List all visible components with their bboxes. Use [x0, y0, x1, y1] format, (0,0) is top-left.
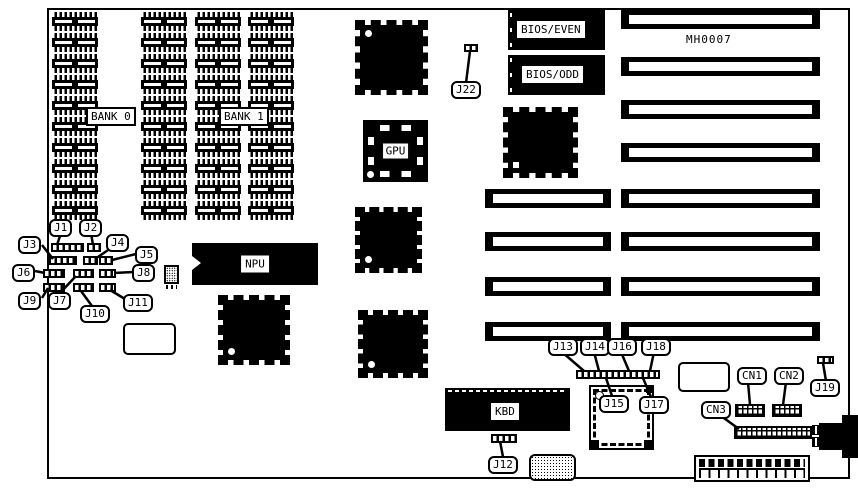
jumper-label-j17: J17	[639, 396, 669, 414]
resonator-small-legs	[166, 285, 177, 289]
qfp-chip-right	[503, 107, 578, 178]
expansion-slot-short-1	[485, 189, 611, 208]
jumper-block-j1	[51, 243, 84, 252]
jumper-label-j8: J8	[132, 264, 155, 282]
board-model-text: MH0007	[686, 33, 732, 46]
expansion-slot-short-3	[485, 277, 611, 296]
expansion-slot-1	[621, 10, 820, 29]
expansion-slot-5	[621, 189, 820, 208]
expansion-slot-6	[621, 232, 820, 251]
gpu-label: GPU	[382, 143, 410, 160]
npu-notch	[192, 256, 201, 270]
din-keyboard-connector	[842, 415, 858, 458]
qfp-chip-top	[355, 20, 428, 95]
jumper-label-j1: J1	[49, 219, 72, 237]
qfp-chip-mid2	[358, 310, 428, 378]
jumper-block-j11	[99, 283, 116, 292]
cn1-connector	[735, 404, 765, 417]
jumper-block-j2	[87, 243, 101, 252]
jumper-block-j7	[73, 269, 94, 278]
kbd-label: KBD	[491, 403, 519, 420]
jumper-label-j14: J14	[580, 338, 610, 356]
din-keyboard-connector-body	[819, 423, 844, 450]
jumper-label-j18: J18	[641, 338, 671, 356]
empty-socket-left	[123, 323, 176, 355]
expansion-slot-4	[621, 143, 820, 162]
jumper-label-j19: J19	[810, 379, 840, 397]
jumper-label-j16: J16	[607, 338, 637, 356]
motherboard-diagram: BANK 0 BANK 1 NPU GPU BIOS/EVEN BIOS/ODD…	[0, 0, 858, 492]
jumper-block-j4	[83, 256, 98, 265]
bios-even-chip: BIOS/EVEN	[508, 10, 605, 50]
bios-odd-label: BIOS/ODD	[522, 66, 583, 83]
gpu-chip: GPU	[363, 120, 428, 182]
crystal-oscillator	[529, 454, 576, 481]
jumper-label-j5: J5	[135, 246, 158, 264]
jumper-block-j5	[99, 256, 113, 265]
din-solder-tab-2	[812, 437, 820, 447]
jumper-block-j3	[49, 256, 77, 265]
bank0-label: BANK 0	[86, 107, 136, 126]
kbd-chip: KBD	[445, 388, 570, 431]
jumper-label-j12: J12	[488, 456, 518, 474]
jumper-block-j10	[73, 283, 94, 292]
jumper-label-j3: J3	[18, 236, 41, 254]
npu-chip: NPU	[192, 243, 318, 285]
qfp-chip-left	[218, 295, 290, 365]
jumper-block-j19	[817, 356, 834, 364]
cn2-connector	[772, 404, 802, 417]
power-connector	[694, 455, 810, 482]
jumper-block-j6	[43, 269, 65, 278]
npu-label: NPU	[241, 256, 269, 273]
jumper-label-j22: J22	[451, 81, 481, 99]
memory-column-2	[141, 12, 187, 220]
connector-label-cn3: CN3	[701, 401, 731, 419]
jumper-label-j2: J2	[79, 219, 102, 237]
jumper-label-j15: J15	[599, 395, 629, 413]
jumper-strip-j13-j18	[576, 370, 660, 379]
connector-label-cn2: CN2	[774, 367, 804, 385]
gpu-pin1-notch	[367, 171, 374, 178]
jumper-label-j11: J11	[123, 294, 153, 312]
jumper-label-j6: J6	[12, 264, 35, 282]
empty-socket-right	[678, 362, 730, 392]
jumper-block-j9	[43, 283, 65, 292]
expansion-slot-7	[621, 277, 820, 296]
expansion-slot-2	[621, 57, 820, 76]
expansion-slot-short-2	[485, 232, 611, 251]
jumper-label-j4: J4	[106, 234, 129, 252]
resonator-small	[164, 265, 179, 284]
jumper-label-j9: J9	[18, 292, 41, 310]
qfp-chip-mid1	[355, 207, 422, 273]
expansion-slot-3	[621, 100, 820, 119]
bank1-label: BANK 1	[219, 107, 269, 126]
jumper-label-j13: J13	[548, 338, 578, 356]
jumper-label-j7: J7	[48, 292, 71, 310]
bios-odd-chip: BIOS/ODD	[508, 55, 605, 95]
connector-label-cn1: CN1	[737, 367, 767, 385]
bios-even-label: BIOS/EVEN	[517, 21, 585, 38]
cn3-connector	[734, 426, 812, 439]
jumper-block-j12	[491, 434, 517, 443]
din-solder-tab-1	[812, 425, 820, 435]
jumper-block-j22	[464, 44, 478, 52]
jumper-block-j8	[99, 269, 116, 278]
jumper-label-j10: J10	[80, 305, 110, 323]
